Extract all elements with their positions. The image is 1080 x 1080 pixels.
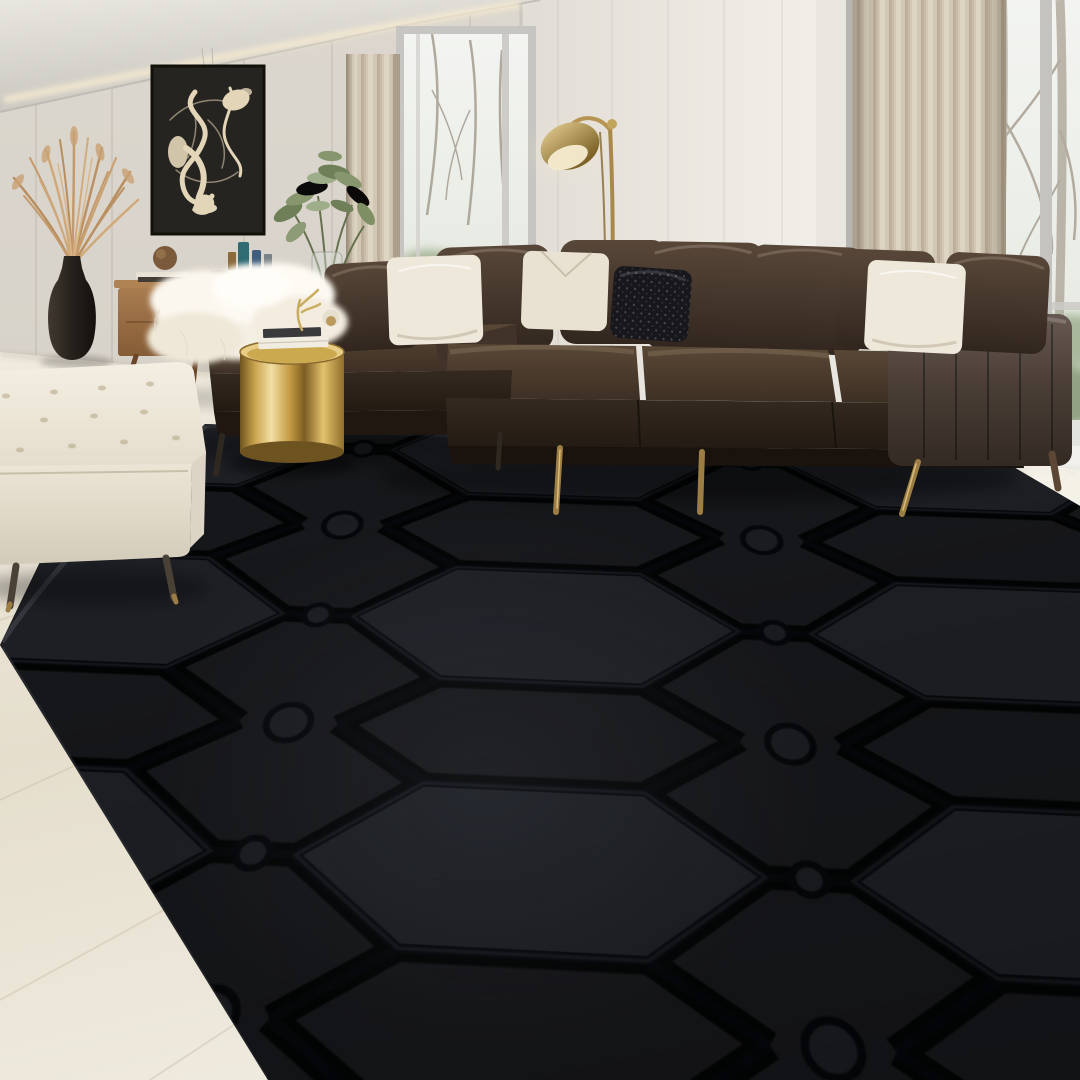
white-pillow-2 — [521, 251, 610, 332]
ottoman-front — [0, 464, 192, 566]
furniture — [0, 0, 1080, 1080]
ottoman-top — [0, 362, 206, 476]
table-books — [258, 327, 329, 349]
white-pillow-3 — [864, 259, 967, 354]
ottoman-side — [190, 452, 206, 548]
sequin-pillow — [610, 265, 693, 342]
living-room-photo — [0, 0, 1080, 1080]
white-pillow-1 — [386, 254, 483, 345]
